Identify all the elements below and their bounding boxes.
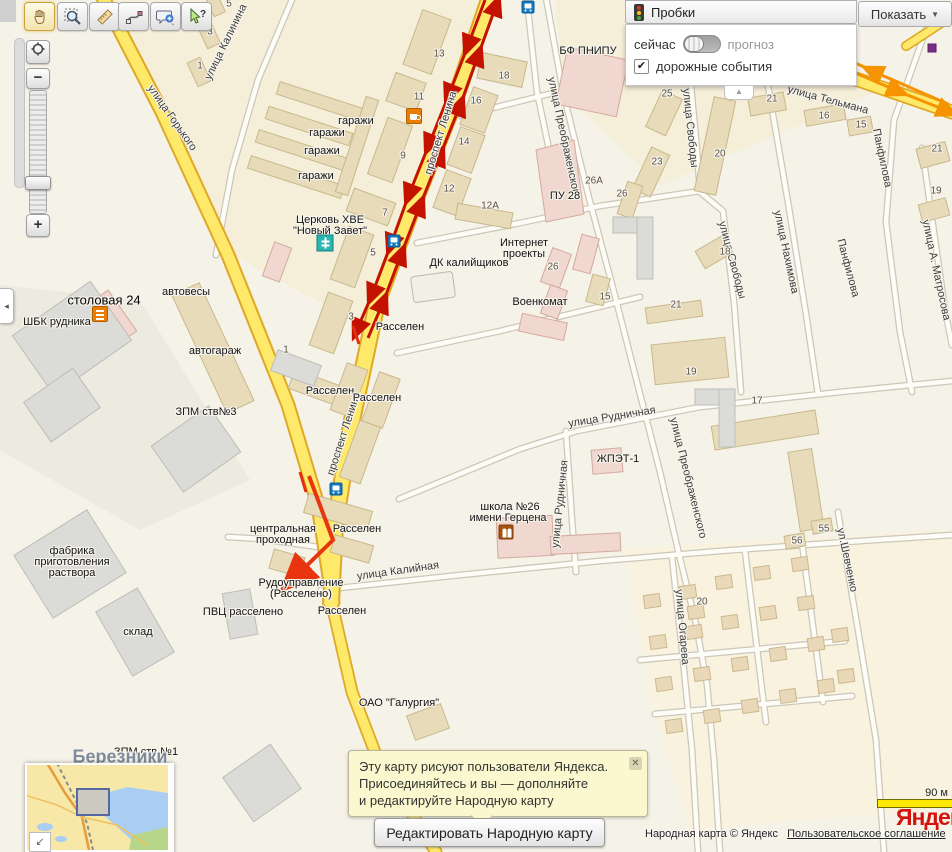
show-label: Показать xyxy=(871,7,926,22)
traffic-panel-header[interactable]: Пробки xyxy=(625,0,857,24)
corner-block xyxy=(0,0,16,22)
canteen-icon[interactable] xyxy=(92,306,108,322)
add-comment-button[interactable] xyxy=(150,2,181,31)
dk-outline-building xyxy=(410,271,455,303)
map-canvas[interactable] xyxy=(0,0,952,852)
traffic-forecast-label[interactable]: прогноз xyxy=(728,37,774,52)
road-events-checkbox[interactable]: ✔ xyxy=(634,59,649,74)
compass-icon xyxy=(31,42,45,56)
cursor-question-icon: ? xyxy=(187,8,207,26)
scale-label: 90 м xyxy=(905,787,948,799)
traffic-light-icon xyxy=(634,4,644,21)
traffic-mode-toggle[interactable] xyxy=(683,35,721,53)
close-icon[interactable]: ✕ xyxy=(629,757,642,770)
pan-hand-button[interactable] xyxy=(24,2,55,31)
edge-strip xyxy=(14,38,25,188)
bus-icon[interactable] xyxy=(388,235,401,248)
toggle-knob xyxy=(684,36,704,52)
map-viewport[interactable]: улица Горькогоулица Калининапроспект Лен… xyxy=(0,0,952,852)
zoom-in-button[interactable]: + xyxy=(26,214,50,237)
copyright-text: Народная карта © Яндекс xyxy=(645,828,778,840)
bubble-line: и редактируйте Народную карту xyxy=(359,792,623,809)
minimap-viewport-rect xyxy=(77,789,109,815)
traffic-panel-body: сейчас прогноз ✔ дорожные события xyxy=(625,24,857,86)
road-event-marker xyxy=(928,44,936,52)
school-icon[interactable] xyxy=(499,525,514,540)
route-button[interactable] xyxy=(118,2,149,31)
ruler-icon xyxy=(96,8,114,26)
yandex-logo: Яндекс xyxy=(896,804,952,831)
comment-plus-icon xyxy=(156,8,175,26)
hand-icon xyxy=(31,8,49,26)
bus-icon[interactable] xyxy=(522,1,535,14)
church-icon[interactable] xyxy=(317,235,334,252)
zoom-select-button[interactable] xyxy=(57,2,88,31)
magnifier-icon xyxy=(64,8,82,26)
minimap-collapse-button[interactable]: ↙ xyxy=(29,832,51,852)
cafe-icon[interactable] xyxy=(406,108,422,124)
bubble-line: Присоединяйтесь и вы — дополня­йте xyxy=(359,775,623,792)
road-events-label[interactable]: дорожные события xyxy=(656,59,772,74)
sidebar-collapse-tab[interactable]: ◂ xyxy=(0,288,14,324)
zoom-slider-handle[interactable] xyxy=(25,176,51,190)
bus-icon[interactable] xyxy=(330,483,343,496)
zoom-out-button[interactable]: − xyxy=(26,68,50,89)
svg-text:?: ? xyxy=(200,9,206,20)
bubble-line: Эту карту рисуют пользователи Яндекса. xyxy=(359,758,623,775)
minimap[interactable]: ↙ xyxy=(25,763,174,852)
chevron-down-icon: ▼ xyxy=(931,10,939,19)
ruler-button[interactable] xyxy=(89,2,120,31)
edit-peoples-map-button[interactable]: Редактировать Народную карту xyxy=(374,818,605,847)
route-icon xyxy=(125,8,143,26)
traffic-panel-collapse-tab[interactable]: ▲ xyxy=(724,86,754,100)
traffic-now-label[interactable]: сейчас xyxy=(634,37,676,52)
show-menu-button[interactable]: Показать ▼ xyxy=(858,1,952,27)
whats-here-button[interactable]: ? xyxy=(181,2,212,31)
zoom-slider-track[interactable] xyxy=(29,90,47,214)
promo-bubble: Эту карту рисуют пользователи Яндекса. П… xyxy=(348,750,648,817)
compass-button[interactable] xyxy=(26,40,50,64)
traffic-panel-title: Пробки xyxy=(651,5,695,20)
